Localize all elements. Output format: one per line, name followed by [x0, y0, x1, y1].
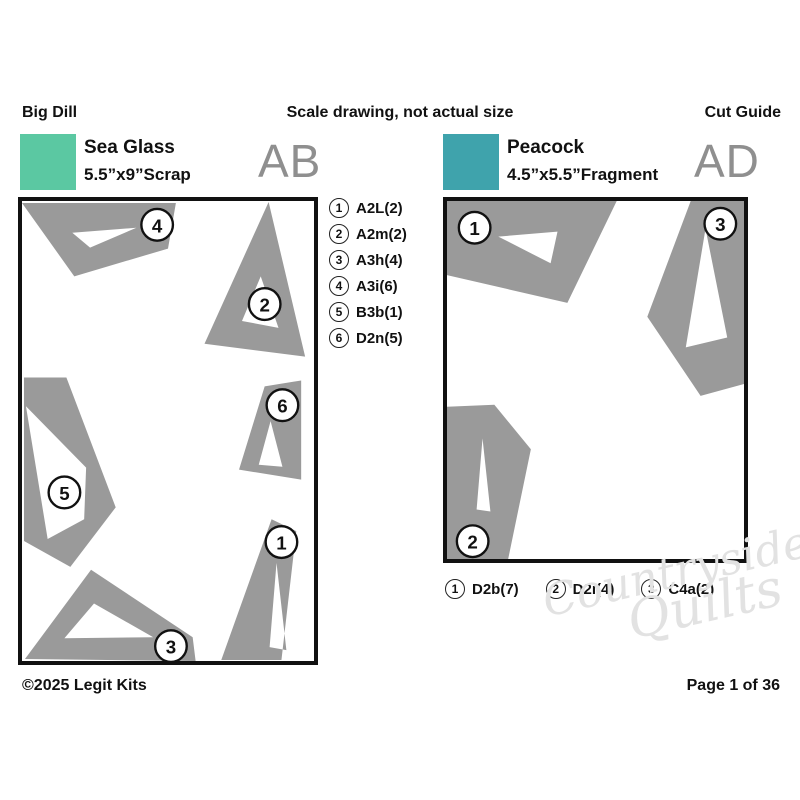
- fabric-name-sea-glass: Sea Glass: [84, 137, 175, 159]
- legend-number-badge: 3: [329, 250, 349, 270]
- legend-piece-label: A2m(2): [356, 226, 407, 243]
- piece-number-marker-2: 2: [457, 525, 489, 557]
- fabric-size-sea-glass: 5.5”x9”Scrap: [84, 165, 191, 185]
- legend-item-A3i(6): 4A3i(6): [329, 276, 407, 296]
- fabric-swatch-sea-glass: [20, 134, 76, 190]
- svg-text:2: 2: [467, 532, 477, 553]
- page-number: Page 1 of 36: [687, 677, 780, 695]
- legend-number-badge: 1: [329, 198, 349, 218]
- panel-code-ad: AD: [694, 134, 760, 188]
- legend-number-badge: 3: [641, 579, 661, 599]
- piece-legend-ab: 1A2L(2)2A2m(2)3A3h(4)4A3i(6)5B3b(1)6D2n(…: [329, 198, 407, 348]
- legend-piece-label: A2L(2): [356, 200, 403, 217]
- legend-item-A2L(2): 1A2L(2): [329, 198, 407, 218]
- cut-layout-drawing-ab: 426513: [22, 201, 314, 661]
- legend-number-badge: 4: [329, 276, 349, 296]
- legend-piece-label: D2i(4): [573, 581, 615, 598]
- legend-item-D2b(7): 1D2b(7): [445, 579, 519, 599]
- guide-label: Cut Guide: [705, 104, 781, 122]
- legend-piece-label: B3b(1): [356, 304, 403, 321]
- cut-guide-page: Big Dill Scale drawing, not actual size …: [0, 0, 800, 800]
- watermark-line2: Quilts: [622, 554, 800, 648]
- fabric-size-peacock: 4.5”x5.5”Fragment: [507, 165, 658, 185]
- legend-item-C4a(2): 3C4a(2): [641, 579, 714, 599]
- legend-item-B3b(1): 5B3b(1): [329, 302, 407, 322]
- legend-piece-label: A3i(6): [356, 278, 398, 295]
- piece-number-marker-1: 1: [266, 526, 298, 558]
- legend-item-D2i(4): 2D2i(4): [546, 579, 615, 599]
- legend-number-badge: 1: [445, 579, 465, 599]
- legend-item-A3h(4): 3A3h(4): [329, 250, 407, 270]
- legend-number-badge: 6: [329, 328, 349, 348]
- cut-layout-panel-ad: 132: [443, 197, 748, 563]
- legend-number-badge: 2: [546, 579, 566, 599]
- cut-piece-shape-2: [205, 202, 306, 357]
- cut-piece-shape-5: [24, 377, 116, 566]
- panel-code-ab: AB: [258, 134, 321, 188]
- svg-text:6: 6: [277, 396, 287, 417]
- piece-number-marker-3: 3: [705, 208, 737, 240]
- legend-item-A2m(2): 2A2m(2): [329, 224, 407, 244]
- svg-text:1: 1: [469, 218, 479, 239]
- legend-number-badge: 2: [329, 224, 349, 244]
- svg-text:5: 5: [59, 483, 69, 504]
- piece-legend-ad: 1D2b(7)2D2i(4)3C4a(2): [445, 579, 714, 599]
- cut-layout-drawing-ad: 132: [447, 201, 744, 559]
- legend-number-badge: 5: [329, 302, 349, 322]
- svg-text:3: 3: [166, 637, 176, 658]
- svg-text:3: 3: [715, 214, 725, 235]
- legend-piece-label: C4a(2): [668, 581, 714, 598]
- legend-item-D2n(5): 6D2n(5): [329, 328, 407, 348]
- fabric-name-peacock: Peacock: [507, 137, 584, 159]
- svg-text:4: 4: [152, 215, 163, 236]
- piece-number-marker-4: 4: [141, 209, 173, 241]
- piece-number-marker-1: 1: [459, 212, 491, 244]
- piece-number-marker-5: 5: [49, 477, 81, 509]
- cut-layout-panel-ab: 426513: [18, 197, 318, 665]
- svg-text:1: 1: [276, 532, 286, 553]
- legend-piece-label: A3h(4): [356, 252, 403, 269]
- copyright: ©2025 Legit Kits: [22, 677, 147, 695]
- svg-text:2: 2: [259, 295, 269, 316]
- piece-number-marker-2: 2: [249, 288, 281, 320]
- legend-piece-label: D2n(5): [356, 330, 403, 347]
- scale-note: Scale drawing, not actual size: [0, 104, 800, 122]
- piece-number-marker-3: 3: [155, 630, 187, 662]
- fabric-swatch-peacock: [443, 134, 499, 190]
- legend-piece-label: D2b(7): [472, 581, 519, 598]
- piece-number-marker-6: 6: [267, 389, 299, 421]
